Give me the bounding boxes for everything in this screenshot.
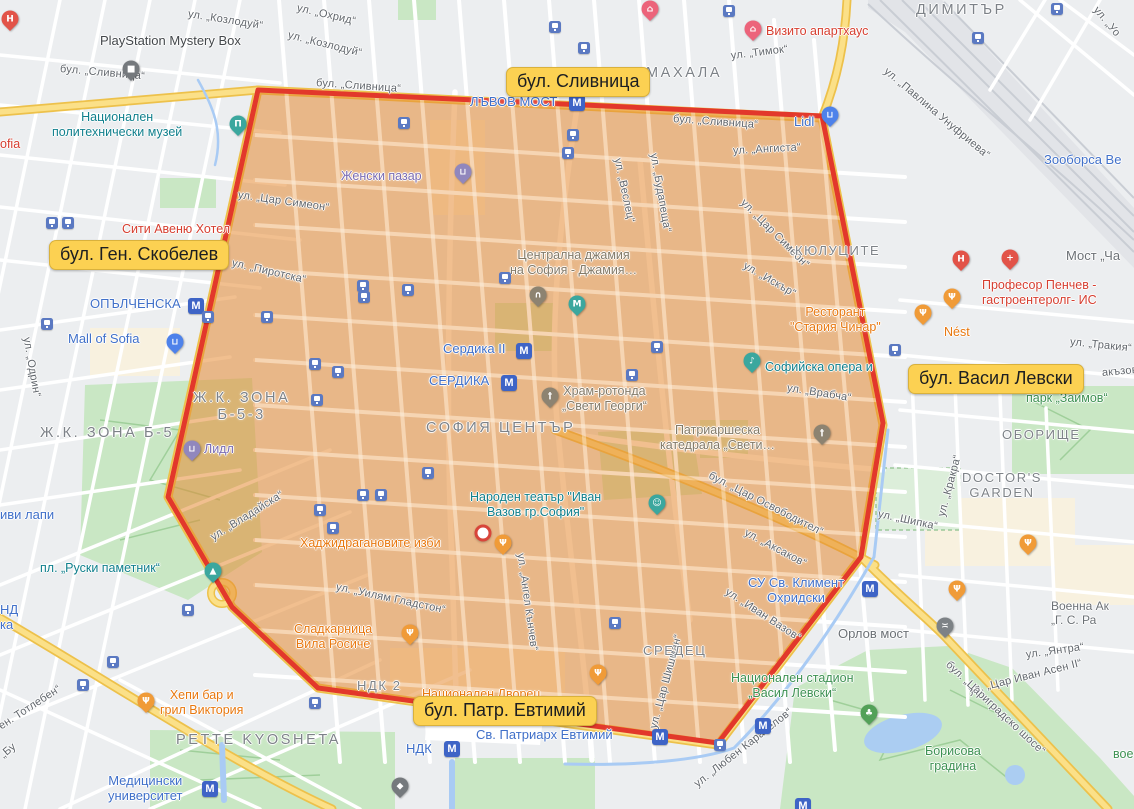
shop-pin[interactable]: ■ — [119, 57, 143, 81]
church-icon: † — [542, 387, 559, 404]
road-annotation-slivnitsa: бул. Сливница — [506, 67, 650, 97]
metro-entrance-icon: М — [569, 295, 586, 312]
restaurant-pin[interactable]: Ψ — [398, 621, 422, 645]
market-icon: ⊔ — [184, 440, 201, 457]
theater-pin[interactable]: ☺ — [645, 491, 669, 515]
church-icon: † — [814, 424, 831, 441]
park-icon: ♣ — [861, 704, 878, 721]
supermarket-pin[interactable]: ⊔ — [818, 103, 842, 127]
annotation-text: бул. Васил Левски — [919, 368, 1073, 388]
university-pin[interactable]: ◆ — [388, 774, 412, 798]
mosque-icon: ∩ — [530, 286, 547, 303]
clinic-pin[interactable]: + — [998, 246, 1022, 270]
restaurant-icon: Ψ — [944, 288, 961, 305]
restaurant-icon: Ψ — [495, 534, 512, 551]
church-pin[interactable]: † — [538, 384, 562, 408]
monument-pin[interactable]: ▲ — [201, 559, 225, 583]
road-annotation-patr-evtimiy: бул. Патр. Евтимий — [413, 696, 597, 726]
church-pin[interactable]: † — [810, 421, 834, 445]
restaurant-pin[interactable]: Ψ — [1016, 531, 1040, 555]
market-pin[interactable]: ⊔ — [451, 160, 475, 184]
monument-icon: ▲ — [205, 562, 222, 579]
market-pin[interactable]: ⊔ — [180, 437, 204, 461]
music-icon: ♪ — [744, 352, 761, 369]
restaurant-icon: Ψ — [949, 580, 966, 597]
restaurant-pin[interactable]: Ψ — [940, 285, 964, 309]
park-pin[interactable]: ♣ — [857, 701, 881, 725]
road-annotation-skobelev: бул. Ген. Скобелев — [49, 240, 229, 270]
restaurant-pin[interactable]: Ψ — [911, 301, 935, 325]
market-icon: ⊔ — [455, 163, 472, 180]
music-pin[interactable]: ♪ — [740, 349, 764, 373]
restaurant-icon: Ψ — [590, 664, 607, 681]
mosque-pin[interactable]: ∩ — [526, 283, 550, 307]
hotel-icon: ⌂ — [745, 20, 762, 37]
shop-icon: ■ — [123, 60, 140, 77]
hospital-icon: H — [1, 10, 18, 27]
hospital-pin[interactable]: H — [949, 247, 973, 271]
theater-icon: ☺ — [649, 494, 666, 511]
metro-entrance-pin[interactable]: М — [565, 292, 589, 316]
annotation-text: бул. Ген. Скобелев — [60, 244, 218, 264]
restaurant-icon: Ψ — [1020, 534, 1037, 551]
hospital-icon: H — [953, 250, 970, 267]
hotel-pin[interactable]: ⌂ — [741, 17, 765, 41]
bridge-icon: ≍ — [937, 617, 954, 634]
restaurant-pin[interactable]: Ψ — [945, 577, 969, 601]
annotation-text: бул. Патр. Евтимий — [424, 700, 586, 720]
road-annotation-vasil-levski: бул. Васил Левски — [908, 364, 1084, 394]
restaurant-icon: Ψ — [138, 692, 155, 709]
mall-icon: ⊔ — [167, 333, 184, 350]
restaurant-pin[interactable]: Ψ — [586, 661, 610, 685]
supermarket-icon: ⊔ — [822, 106, 839, 123]
map-viewport[interactable]: ул. „Козлодуй“ул. „Козлодуй“ул. „Охрид“б… — [0, 0, 1134, 809]
restaurant-pin[interactable]: Ψ — [134, 689, 158, 713]
annotation-text: бул. Сливница — [517, 71, 639, 91]
hotel-icon: ⌂ — [642, 0, 659, 17]
restaurant-icon: Ψ — [915, 304, 932, 321]
hospital-pin[interactable]: H — [0, 7, 22, 31]
restaurant-icon: Ψ — [402, 624, 419, 641]
university-icon: ◆ — [392, 777, 409, 794]
hotel-pin[interactable]: ⌂ — [638, 0, 662, 21]
museum-icon: Π — [230, 115, 247, 132]
map-pins-layer: HH+⌂⌂ΠМ▲☺♪∩††ΨΨΨΨΨΨΨΨ⊔⊔⊔⊔≍♣■◆ — [0, 0, 1134, 809]
bridge-pin[interactable]: ≍ — [933, 614, 957, 638]
restaurant-pin[interactable]: Ψ — [491, 531, 515, 555]
museum-pin[interactable]: Π — [226, 112, 250, 136]
clinic-icon: + — [1002, 249, 1019, 266]
mall-pin[interactable]: ⊔ — [163, 330, 187, 354]
